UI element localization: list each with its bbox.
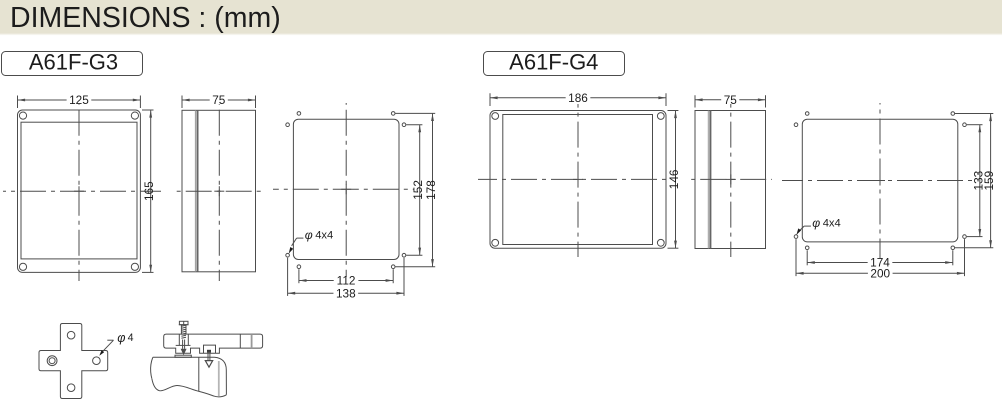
svg-text:186: 186 [568,91,588,105]
svg-text:4x4: 4x4 [823,217,841,229]
svg-text:125: 125 [69,93,89,107]
svg-text:75: 75 [212,93,226,107]
svg-text:146: 146 [667,169,681,189]
svg-text:A61F-G3: A61F-G3 [29,50,118,75]
svg-text:φ: φ [305,228,313,242]
svg-text:159: 159 [982,171,996,191]
svg-text:φ: φ [117,331,125,345]
svg-text:75: 75 [724,93,738,107]
svg-text:178: 178 [424,180,438,200]
svg-text:4: 4 [128,332,134,344]
svg-text:138: 138 [336,286,356,300]
svg-text:200: 200 [870,266,890,280]
svg-text:165: 165 [142,181,156,201]
svg-text:4x4: 4x4 [315,229,333,241]
svg-text:φ: φ [812,216,820,230]
svg-text:DIMENSIONS : (mm): DIMENSIONS : (mm) [10,2,281,34]
svg-text:A61F-G4: A61F-G4 [509,50,598,75]
